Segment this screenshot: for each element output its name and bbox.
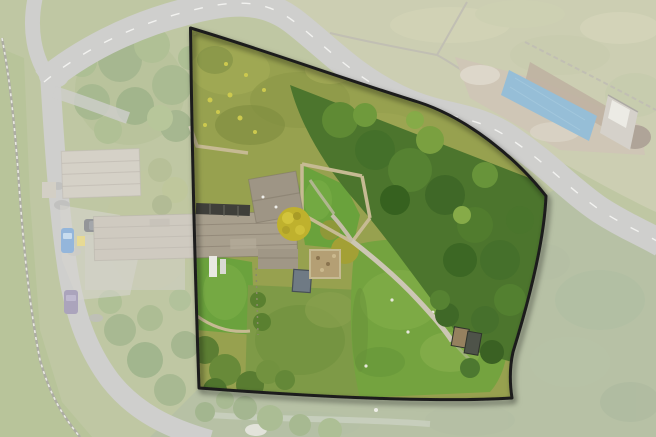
- aerial-photo-canvas: [0, 0, 656, 437]
- fade-overlay: [0, 0, 656, 437]
- aerial-photograph: [0, 0, 656, 437]
